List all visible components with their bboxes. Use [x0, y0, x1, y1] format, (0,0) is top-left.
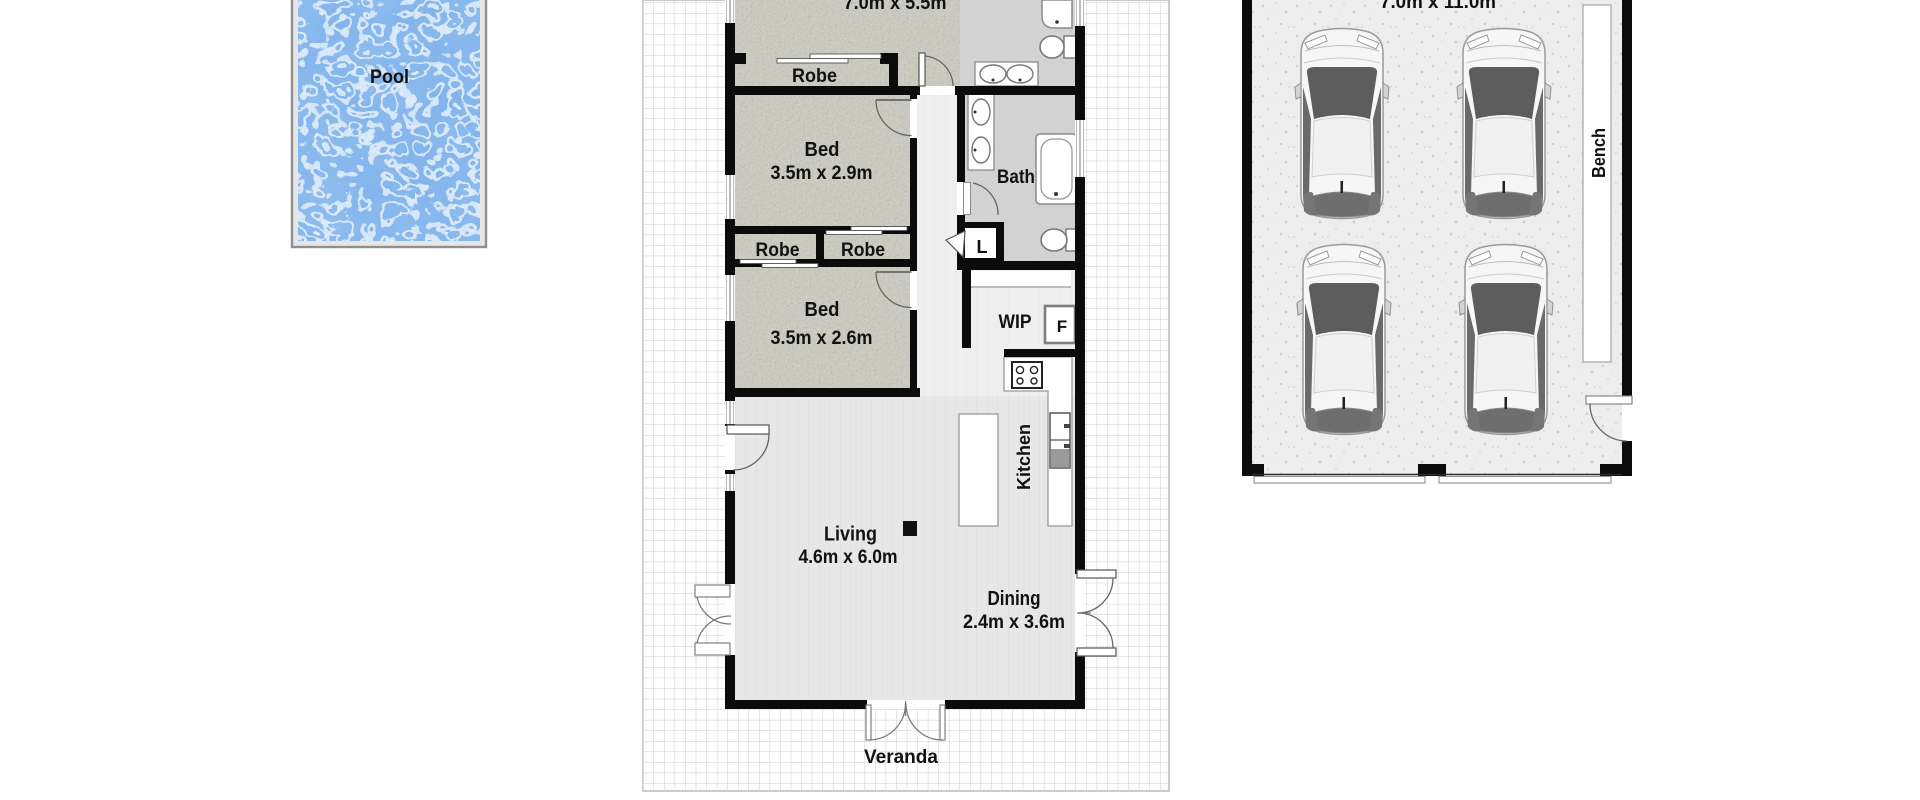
- svg-text:Bed: Bed: [805, 299, 840, 321]
- svg-text:2.4m x 3.6m: 2.4m x 3.6m: [963, 612, 1065, 633]
- svg-text:3.5m x 2.9m: 3.5m x 2.9m: [771, 163, 873, 184]
- svg-text:Robe: Robe: [756, 240, 800, 261]
- svg-text:Pool: Pool: [370, 67, 409, 88]
- svg-text:Bed: Bed: [805, 139, 840, 161]
- svg-text:F: F: [1057, 317, 1067, 336]
- svg-text:Veranda: Veranda: [864, 747, 938, 768]
- svg-text:Living: Living: [824, 524, 877, 546]
- svg-text:3.5m x 2.6m: 3.5m x 2.6m: [771, 328, 873, 349]
- svg-text:WIP: WIP: [999, 312, 1032, 333]
- svg-text:Bath: Bath: [997, 167, 1035, 188]
- svg-text:L: L: [977, 237, 988, 257]
- svg-text:7.0m x 11.0m: 7.0m x 11.0m: [1380, 0, 1496, 13]
- svg-text:7.0m x 5.5m: 7.0m x 5.5m: [844, 0, 947, 14]
- svg-text:Dining: Dining: [988, 588, 1041, 610]
- svg-text:4.6m x 6.0m: 4.6m x 6.0m: [799, 547, 898, 568]
- svg-text:Robe: Robe: [841, 240, 885, 261]
- svg-text:Robe: Robe: [792, 66, 837, 87]
- svg-text:Kitchen: Kitchen: [1014, 424, 1034, 490]
- svg-text:Bench: Bench: [1589, 128, 1609, 178]
